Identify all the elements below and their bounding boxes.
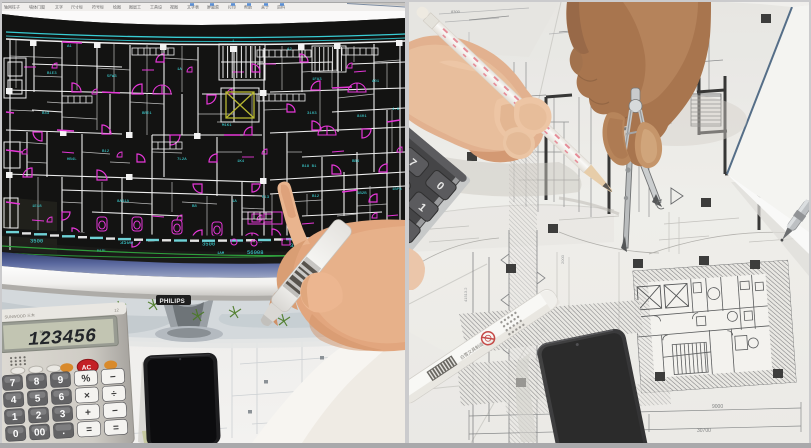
svg-text:5FW3: 5FW3 xyxy=(107,75,117,79)
svg-text:A1: A1 xyxy=(67,45,72,49)
svg-text:尺寸标: 尺寸标 xyxy=(71,4,83,10)
svg-text:B12: B12 xyxy=(312,195,320,199)
svg-text:P13: P13 xyxy=(262,196,270,200)
svg-text:−: − xyxy=(112,406,119,417)
svg-text:=: = xyxy=(86,424,93,435)
svg-text:3500: 3500 xyxy=(30,238,43,245)
svg-text:1A: 1A xyxy=(232,200,237,204)
svg-text:×: × xyxy=(84,390,91,401)
svg-text:8401: 8401 xyxy=(357,115,367,119)
svg-text:%: % xyxy=(81,373,91,385)
svg-text:8A31A: 8A31A xyxy=(117,200,130,204)
svg-text:=: = xyxy=(113,423,120,434)
svg-text:轴网柱子: 轴网柱子 xyxy=(4,4,20,10)
svg-text:7L2A: 7L2A xyxy=(177,158,187,162)
svg-text:绘图: 绘图 xyxy=(113,4,121,10)
svg-text:−: − xyxy=(110,372,117,383)
svg-text:1B2B: 1B2B xyxy=(357,192,367,196)
svg-text:+: + xyxy=(85,407,92,418)
svg-text:B1E3: B1E3 xyxy=(47,72,57,76)
svg-text:1BP8: 1BP8 xyxy=(392,188,402,192)
svg-text:123456: 123456 xyxy=(27,325,99,351)
svg-text:文字: 文字 xyxy=(55,4,63,10)
svg-text:B8: B8 xyxy=(192,205,197,209)
svg-text:墙体门窗: 墙体门窗 xyxy=(29,4,45,10)
svg-text:1A: 1A xyxy=(177,68,182,72)
svg-text:3103: 3103 xyxy=(307,112,317,116)
svg-text:PHILIPS: PHILIPS xyxy=(160,298,185,305)
svg-text:1K4: 1K4 xyxy=(237,160,245,164)
svg-text:A01: A01 xyxy=(372,80,380,84)
svg-text:M1K1: M1K1 xyxy=(222,124,232,128)
svg-text:BB4: BB4 xyxy=(352,160,360,164)
svg-text:56008: 56008 xyxy=(247,249,264,256)
svg-text:图层工: 图层工 xyxy=(129,4,141,10)
svg-text:4.8: 4.8 xyxy=(392,108,400,112)
svg-text:B43: B43 xyxy=(42,112,50,116)
svg-text:HB4L: HB4L xyxy=(67,158,77,162)
svg-text:视图: 视图 xyxy=(170,4,178,10)
svg-text:1E18: 1E18 xyxy=(32,205,42,209)
svg-text:B18 B1: B18 B1 xyxy=(302,165,317,169)
svg-text:00: 00 xyxy=(34,427,46,439)
svg-text:A2: A2 xyxy=(287,48,292,52)
svg-text:1FA3: 1FA3 xyxy=(312,78,322,82)
svg-text:B12: B12 xyxy=(102,150,110,154)
svg-text:工具设: 工具设 xyxy=(150,4,162,10)
svg-text:BRE1: BRE1 xyxy=(142,112,152,116)
svg-text:符号标: 符号标 xyxy=(92,4,104,10)
